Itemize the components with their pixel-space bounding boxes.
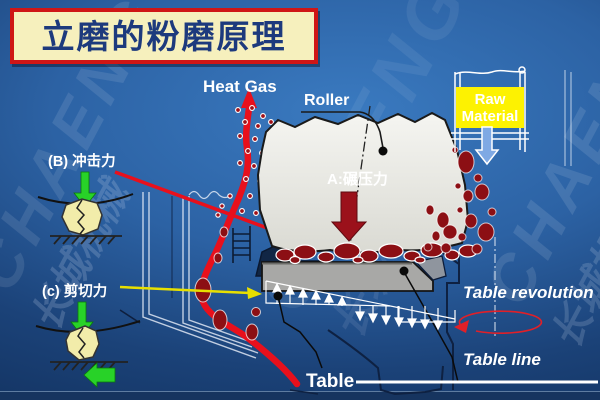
- force-a-label: A:碾压力: [327, 170, 388, 188]
- table-revolution-label: Table revolution: [463, 283, 594, 302]
- raw-material-label-line1: Raw: [475, 91, 506, 108]
- impact-force-inset: (B) 冲击力: [38, 152, 133, 244]
- raw-material-label-line2: Material: [462, 108, 519, 125]
- table-line-label: Table line: [463, 350, 541, 369]
- table-line-anchor-dot: [400, 267, 409, 276]
- table-revolution-arrow: [454, 311, 541, 333]
- ground-hatch-b: [50, 236, 122, 244]
- nozzle-ring-louvre: [233, 226, 250, 263]
- bottom-band: [0, 391, 600, 400]
- force-c-label: (c) 剪切力: [42, 282, 107, 300]
- shear-force-inset: (c) 剪切力: [36, 282, 140, 387]
- heat-gas-label: Heat Gas: [203, 77, 277, 96]
- page-title: 立磨的粉磨原理: [42, 20, 287, 53]
- rock-c: [66, 326, 99, 360]
- force-b-label: (B) 冲击力: [48, 152, 116, 170]
- slide: CHAENG 长城机械 CHAENG 长城机械 CHAENG 长城机械: [0, 0, 600, 400]
- shear-pointer: [120, 287, 262, 299]
- table-pointer: [278, 296, 322, 368]
- title-banner: 立磨的粉磨原理: [10, 8, 318, 64]
- ground-hatch-c: [50, 362, 128, 370]
- roller-label: Roller: [304, 92, 349, 109]
- raw-material-box: Raw Material: [456, 87, 524, 128]
- roller: A:碾压力: [258, 106, 468, 253]
- table-label: Table: [306, 371, 354, 392]
